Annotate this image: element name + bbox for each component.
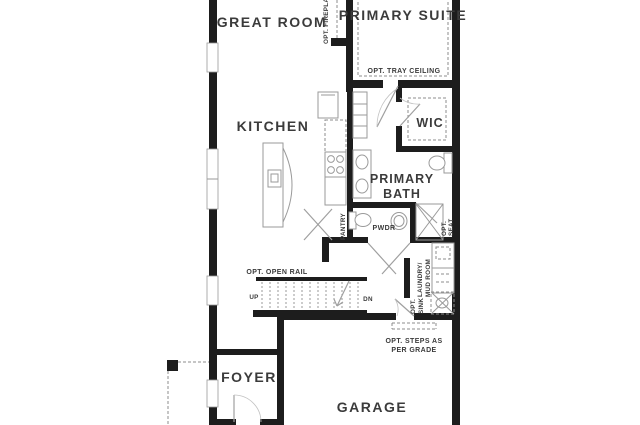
- garage-label: GARAGE: [337, 399, 407, 415]
- wic-label: WIC: [416, 116, 443, 130]
- opt-fireplace-label: OPT. FIREPLACE: [323, 0, 330, 44]
- linen-closet: [353, 92, 367, 138]
- washer-dryer-icons: [432, 243, 454, 293]
- opt-steps-label-2: PER GRADE: [391, 347, 436, 354]
- staircase: [262, 281, 358, 309]
- laundry-label-1: LAUNDRY/: [417, 262, 424, 297]
- primary-bath-label-1: PRIMARY: [370, 172, 434, 186]
- stove-icon: [325, 152, 346, 177]
- pantry-pwdr-doors: [304, 209, 332, 240]
- refrigerator-icon: [318, 92, 338, 118]
- opt-seat-label-1: OPT.: [441, 221, 448, 236]
- primary-bath-label-2: BATH: [383, 187, 421, 201]
- up-label: UP: [249, 294, 258, 301]
- kitchen-counter: [325, 177, 346, 205]
- pwdr-toilet-icon: [349, 212, 371, 229]
- great-room-label: GREAT ROOM: [217, 14, 327, 30]
- shower-door: [416, 203, 437, 223]
- shower-opt-seat: [416, 204, 443, 240]
- island-sink-icon: [268, 170, 281, 187]
- primary-suite-label: PRIMARY SUITE: [339, 7, 467, 23]
- opt-sink-icon: [431, 292, 454, 314]
- bath-toilet-icon: [429, 153, 452, 173]
- mudroom-hall-doors: [368, 243, 410, 274]
- opt-sink-label-2: SINK: [418, 298, 425, 314]
- opt-steps-label-1: OPT. STEPS AS: [385, 338, 442, 345]
- foyer-label: FOYER: [221, 369, 277, 385]
- floor-plan-drawing: GREAT ROOM PRIMARY SUITE KITCHEN WIC PRI…: [0, 0, 640, 425]
- laundry-label-2: MUD ROOM: [425, 259, 432, 297]
- upper-cabinet-outline: [325, 120, 346, 152]
- opt-open-rail-label: OPT. OPEN RAIL: [246, 269, 308, 276]
- dn-label: DN: [363, 296, 373, 303]
- pantry-label: PANTRY: [340, 213, 347, 240]
- primary-suite-door: [377, 86, 398, 127]
- floor-plan-image: GREAT ROOM PRIMARY SUITE KITCHEN WIC PRI…: [0, 0, 640, 425]
- kitchen-label: KITCHEN: [237, 118, 310, 134]
- double-vanity-icon: [353, 150, 371, 198]
- opt-sink-label-1: OPT.: [410, 299, 417, 314]
- porch-post: [167, 360, 178, 371]
- pwdr-label: PWDR: [373, 225, 396, 232]
- kitchen-island: [263, 143, 292, 227]
- opt-seat-label-2: SEAT: [448, 218, 455, 236]
- opt-tray-ceiling-label: OPT. TRAY CEILING: [368, 68, 441, 75]
- front-door: [234, 395, 261, 422]
